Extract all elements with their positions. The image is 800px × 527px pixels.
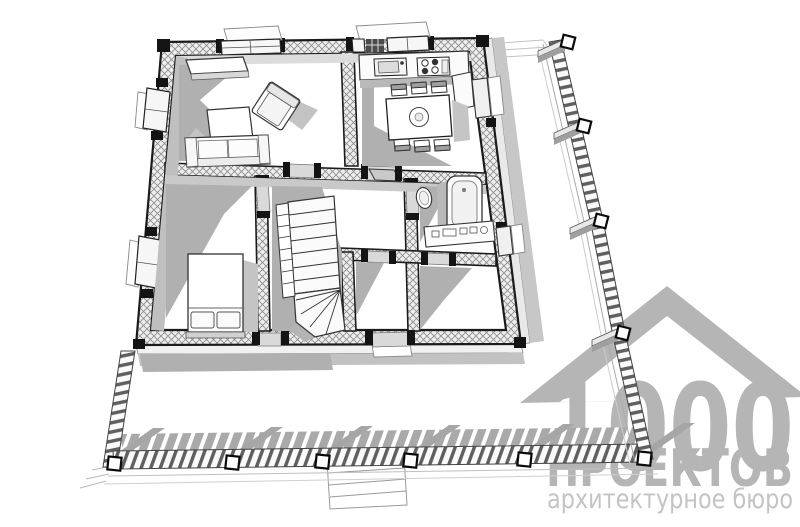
dining-chairs-bottom bbox=[394, 139, 450, 152]
bed-shadow bbox=[243, 260, 258, 332]
vanity-counter bbox=[424, 221, 495, 247]
cooktop bbox=[417, 57, 450, 76]
right-wall-window-kitchen bbox=[472, 76, 504, 118]
bedroom bbox=[186, 254, 258, 338]
dining-table bbox=[386, 95, 452, 140]
tv-console bbox=[186, 57, 249, 80]
left-wall-window-lower bbox=[126, 236, 160, 288]
table-shadow bbox=[452, 100, 470, 142]
sofa bbox=[185, 135, 270, 167]
pillow bbox=[217, 312, 240, 328]
kitchen-sink bbox=[374, 58, 407, 76]
wall-living-kitchen bbox=[341, 52, 358, 166]
right-wall-window-lower bbox=[496, 224, 525, 256]
double-bed bbox=[186, 254, 245, 338]
kitchen-window bbox=[352, 22, 430, 52]
left-wall-window-upper bbox=[135, 88, 170, 132]
entrance-shadow bbox=[420, 266, 472, 330]
headboard bbox=[186, 332, 245, 338]
floor-plan-rendering: 1000 ПРОЕКТОВ архитектурное бюро bbox=[0, 0, 800, 527]
stair-flight bbox=[288, 196, 340, 294]
living-room-window bbox=[221, 26, 282, 55]
bottom-wall-shadow-left bbox=[140, 353, 333, 372]
watermark-logo: 1000 ПРОЕКТОВ архитектурное бюро bbox=[520, 286, 800, 515]
studio-tagline: архитектурное бюро bbox=[547, 484, 793, 515]
storage-shadow bbox=[356, 262, 384, 316]
pillow bbox=[191, 312, 214, 328]
floor-plan-sheet: 1000 ПРОЕКТОВ архитектурное бюро bbox=[0, 0, 800, 527]
